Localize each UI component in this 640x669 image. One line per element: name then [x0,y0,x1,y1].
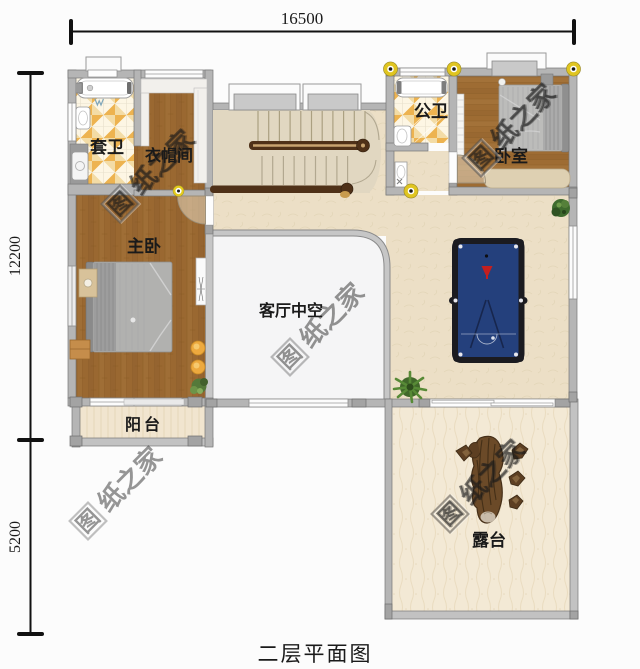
svg-text:二层平面图: 二层平面图 [258,642,373,666]
svg-text:5200: 5200 [7,521,24,553]
svg-text:主卧: 主卧 [127,236,161,256]
svg-text:阳台: 阳台 [125,415,163,434]
svg-text:套卫: 套卫 [89,137,124,157]
svg-text:16500: 16500 [281,9,324,28]
svg-text:露台: 露台 [472,530,506,550]
svg-text:公卫: 公卫 [414,102,448,121]
svg-text:12200: 12200 [7,236,24,276]
